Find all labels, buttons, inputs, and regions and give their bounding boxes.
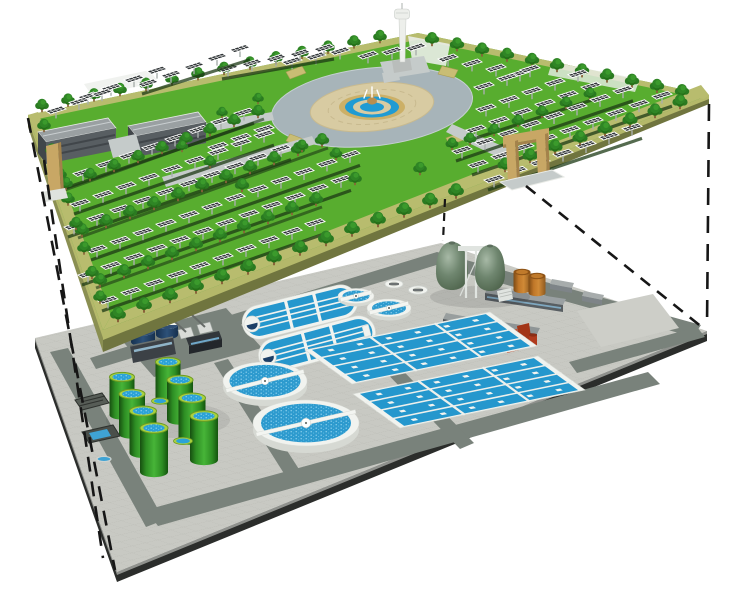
observation-tower-top	[395, 9, 410, 19]
ground-pit-2-water	[176, 439, 190, 444]
small-pool	[97, 456, 111, 461]
clarifier-medium-1	[338, 289, 374, 307]
layers-root	[28, 3, 709, 582]
gas-tank-2	[529, 273, 546, 296]
digester-cap-2	[487, 245, 494, 248]
projection-line-right-vertical	[707, 104, 709, 327]
gas-tank-1	[514, 269, 531, 293]
digestion-tank-7	[190, 411, 218, 465]
clarifier-large-2	[253, 400, 359, 453]
egg-digester-2	[475, 245, 505, 291]
tree	[35, 99, 49, 112]
fountain-sculpture	[367, 97, 377, 104]
digester-platform	[458, 246, 484, 251]
solar-panel	[230, 45, 250, 57]
observation-tower-shaft	[399, 18, 406, 62]
clarifier-large-1	[223, 362, 307, 406]
scene-svg	[0, 0, 740, 589]
clarifier-medium-2	[367, 299, 411, 321]
digestion-tank-8	[140, 423, 168, 477]
ground-pit-1-water	[154, 399, 166, 403]
cutaway-illustration	[0, 0, 740, 589]
digester-cap-1	[449, 241, 456, 244]
